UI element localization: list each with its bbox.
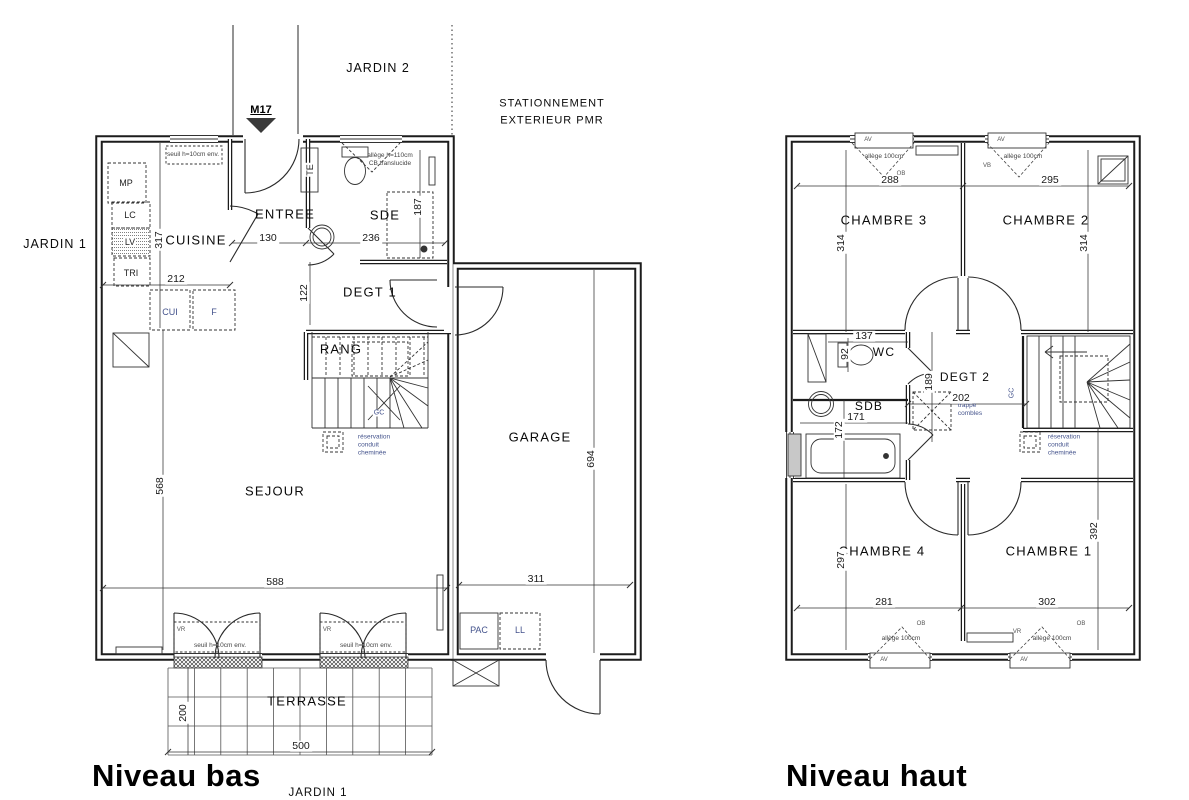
dim-171: 171 xyxy=(845,412,867,423)
dim-137: 137 xyxy=(853,331,875,342)
dim-588: 588 xyxy=(264,577,286,588)
chimney-box-high xyxy=(1020,432,1040,452)
note-reservation-low: réservation conduit cheminée xyxy=(358,433,390,456)
note-trappe: trappe combles xyxy=(958,402,982,418)
note-allege-b1: allège 100cm xyxy=(882,635,921,643)
tag-ob-b1: OB xyxy=(917,621,926,627)
tag-av-1: AV xyxy=(864,137,872,143)
fixture-te: TE xyxy=(305,163,315,177)
note-reservation-high: réservation conduit cheminée xyxy=(1048,433,1080,456)
note-allege-t1: allège 100cm xyxy=(865,153,904,161)
room-label-rang: RANG xyxy=(320,342,362,357)
dim-392: 392 xyxy=(1089,520,1100,542)
note-allege-sde: allège h=110cm CB translucide xyxy=(367,152,413,168)
walls-low-outer xyxy=(99,139,638,657)
tag-av-4: AV xyxy=(1020,657,1028,663)
dim-288: 288 xyxy=(879,175,901,186)
dim-189: 189 xyxy=(924,371,935,393)
fixtures-low xyxy=(108,143,540,686)
dim-500: 500 xyxy=(290,741,312,752)
fixture-tri: TRI xyxy=(123,268,140,278)
dim-281: 281 xyxy=(873,597,895,608)
entry-arrow-icon xyxy=(246,118,276,133)
room-label-degt2: DEGT 2 xyxy=(940,370,990,384)
fixture-gc-high: GC xyxy=(1009,387,1016,400)
dim-568: 568 xyxy=(155,475,166,497)
tag-av-3: AV xyxy=(880,657,888,663)
dim-122: 122 xyxy=(299,282,310,304)
note-allege-t2: allège 100cm xyxy=(1004,153,1043,161)
dim-187: 187 xyxy=(413,196,424,218)
stationnement-label: STATIONNEMENT EXTERIEUR PMR xyxy=(499,96,604,129)
room-label-chambre2: CHAMBRE 2 xyxy=(1003,213,1090,228)
note-seuil-door1: seuil h=10cm env. xyxy=(194,642,246,650)
dim-172: 172 xyxy=(834,419,845,441)
room-label-chambre4: CHAMBRE 4 xyxy=(839,544,926,559)
room-label-terrasse: TERRASSE xyxy=(267,694,347,709)
tag-av-2: AV xyxy=(997,137,1005,143)
fixture-ll: LL xyxy=(514,625,526,635)
dim-202: 202 xyxy=(950,393,972,404)
jardin1-left-label: JARDIN 1 xyxy=(23,237,87,251)
room-label-wc: WC xyxy=(873,345,895,359)
fixture-f: F xyxy=(210,307,218,317)
room-label-chambre1: CHAMBRE 1 xyxy=(1006,544,1093,559)
dim-297: 297 xyxy=(836,549,847,571)
room-label-cuisine: CUISINE xyxy=(165,233,226,248)
fixture-mp: MP xyxy=(118,178,134,188)
jardin2-label: JARDIN 2 xyxy=(346,61,410,75)
site-lines-low xyxy=(233,25,452,135)
tag-vb-t2: VB xyxy=(983,163,991,169)
tag-ob-b2: OB xyxy=(1077,621,1086,627)
entry-marker-label: M17 xyxy=(250,104,271,116)
fixture-pac: PAC xyxy=(469,625,489,635)
fixture-cui: CUI xyxy=(161,307,179,317)
dim-212: 212 xyxy=(165,274,187,285)
title-niveau-haut: Niveau haut xyxy=(786,758,967,794)
dim-314-left: 314 xyxy=(836,232,847,254)
dim-92: 92 xyxy=(840,346,851,362)
room-label-sde: SDE xyxy=(370,208,400,223)
room-label-entree: ENTREE xyxy=(255,207,315,222)
note-allege-b2: allège 100cm xyxy=(1033,635,1072,643)
dim-236: 236 xyxy=(360,233,382,244)
fixture-lv: LV xyxy=(124,237,136,247)
chimney-box-low xyxy=(323,432,343,452)
dim-317: 317 xyxy=(154,229,165,251)
dim-295: 295 xyxy=(1039,175,1061,186)
room-label-garage: GARAGE xyxy=(509,430,572,445)
tag-vr-door2: VR xyxy=(323,627,331,633)
dim-200: 200 xyxy=(178,702,189,724)
fixture-lc: LC xyxy=(123,210,137,220)
room-label-chambre3: CHAMBRE 3 xyxy=(841,213,928,228)
fixture-gc-low: GC xyxy=(373,410,386,417)
note-seuil-kitchen: seuil h=10cm env. xyxy=(167,151,219,159)
dim-302: 302 xyxy=(1036,597,1058,608)
tag-vr-door1: VR xyxy=(177,627,185,633)
dim-311: 311 xyxy=(526,574,547,585)
dim-314-right: 314 xyxy=(1079,232,1090,254)
tag-vr-b2: VR xyxy=(1013,629,1021,635)
note-seuil-door2: seuil h=10cm env. xyxy=(340,642,392,650)
room-label-sejour: SEJOUR xyxy=(245,484,305,499)
title-niveau-bas: Niveau bas xyxy=(92,758,261,794)
jardin1-bottom-label: JARDIN 1 xyxy=(288,787,347,799)
dim-694: 694 xyxy=(586,448,597,470)
floorplan-page: JARDIN 2 M17 STATIONNEMENT EXTERIEUR PMR… xyxy=(0,0,1189,800)
dim-130: 130 xyxy=(257,233,279,244)
stairs-high xyxy=(1027,336,1130,428)
room-label-degt1: DEGT 1 xyxy=(343,285,397,300)
